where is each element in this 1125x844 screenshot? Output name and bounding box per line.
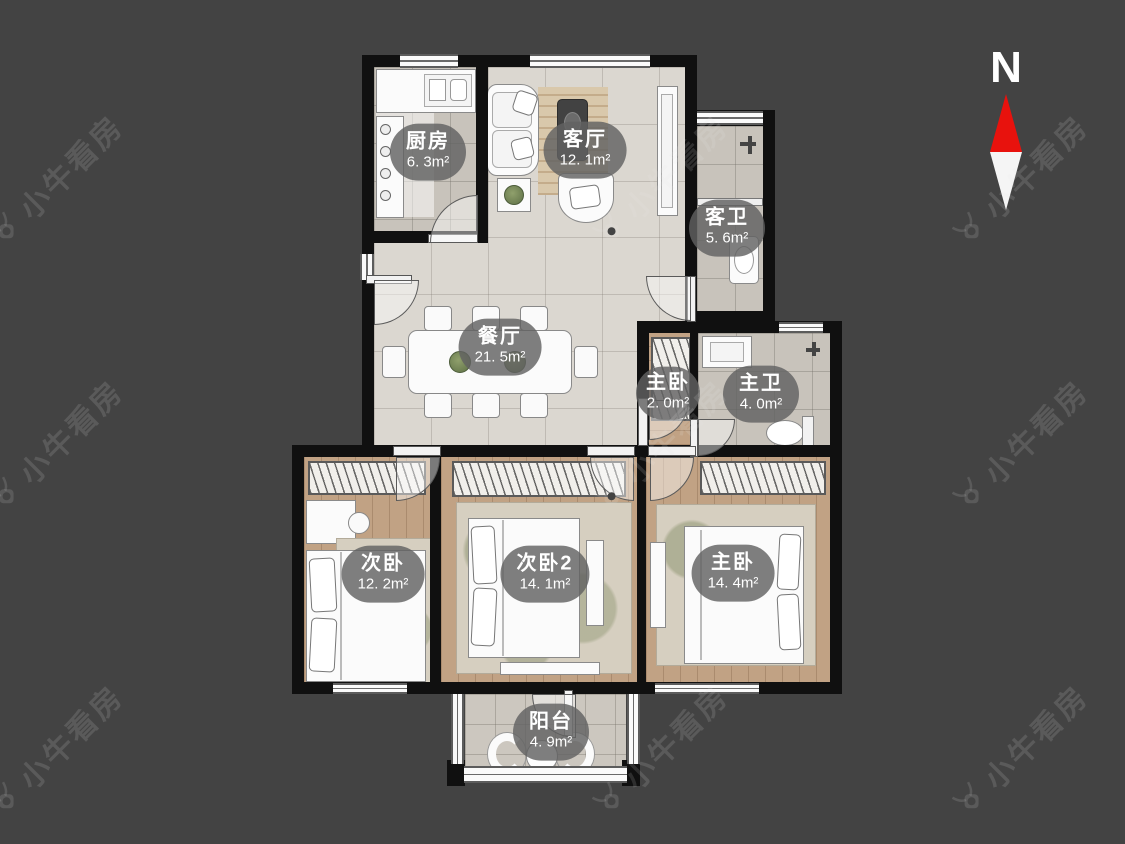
wall-bedrooms-top [292,445,842,457]
master-bath-basin [710,342,744,362]
wall-right-outer [830,321,842,694]
watermark-text: 小牛看房 [972,673,1096,797]
wall-guestbath-right [763,110,775,323]
window-masterbedroom-bottom [655,683,759,694]
dining-chair [472,393,500,418]
watermark: 小牛看房 [0,103,132,256]
bedroom2-door-leaf [393,446,441,456]
room-label-guest-bathroom: 客卫 5. 6m² [689,200,765,257]
bedroom2-chair [348,512,370,534]
bed-pillow [309,557,338,612]
watermark-text: 小牛看房 [7,103,131,227]
dining-chair [520,393,548,418]
room-area: 21. 5m² [475,349,526,368]
watermark: 小牛看房 [943,673,1096,826]
room-area: 4. 9m² [529,734,573,753]
wall-bedroom3-master-divider [637,457,646,694]
room-label-bedroom-3: 次卧2 14. 1m² [500,546,589,603]
room-label-dining-room: 餐厅 21. 5m² [459,319,542,376]
bed-pillow [470,587,497,646]
watermark-text: 小牛看房 [7,368,131,492]
room-name: 餐厅 [475,326,526,349]
room-label-living-room: 客厅 12. 1m² [544,122,627,179]
bed-pillow [309,617,338,672]
room-name: 厨房 [406,131,450,154]
shower-head-icon [740,142,756,146]
room-label-master-bathroom: 主卫 4. 0m² [723,366,799,423]
compass-south-needle [990,152,1022,210]
room-name: 客厅 [560,129,611,152]
compass-north-needle [990,94,1022,152]
kitchen-sink-bowl-right [450,79,467,101]
window-balcony-left [451,694,464,764]
window-masterbath-top [779,322,823,333]
watermark-text: 小牛看房 [972,368,1096,492]
room-area: 6. 3m² [406,154,450,173]
room-name: 主卫 [739,373,783,396]
window-living-top [530,54,650,68]
bedroom3-lowboard [500,662,600,675]
room-name: 阳台 [529,711,573,734]
window-balcony-bottom [464,766,627,783]
bed-pillow [470,525,497,584]
room-name: 次卧 [358,553,409,576]
window-balcony-right [627,694,640,764]
bedroom3-cabinet [586,540,604,626]
room-area: 14. 1m² [516,576,573,595]
master-bedroom-cabinet [650,542,666,628]
master-bath-toilet [766,420,804,446]
dining-chair [424,306,452,331]
room-area: 2. 0m² [646,395,690,414]
niu-logo-icon [0,777,28,822]
master-bath-toilet-tank [802,416,814,448]
wall-bedroom2-3-divider [430,457,441,694]
window-guestbath-top [697,111,763,125]
room-area: 5. 6m² [705,230,749,249]
room-name: 主卧 [646,372,690,395]
room-label-master-bedroom: 主卧 14. 4m² [692,545,775,602]
niu-logo-icon [948,472,993,517]
compass: N [976,46,1036,212]
faucet-icon [812,342,816,356]
compass-north-label: N [976,46,1036,90]
room-area: 12. 1m² [560,152,611,171]
room-area: 4. 0m² [739,396,783,415]
niu-logo-icon [948,777,993,822]
wall-bedroom2-left [292,457,304,694]
niu-logo-icon [948,207,993,252]
watermark: 小牛看房 [0,368,132,521]
dining-chair [574,346,598,378]
room-label-master-closet: 主卧 2. 0m² [636,367,700,420]
bed-pillow [777,593,802,650]
compass-needle-icon [988,94,1024,212]
room-label-balcony: 阳台 4. 9m² [513,704,589,761]
niu-logo-icon [0,207,28,252]
stove-burner [380,190,391,201]
plant [504,185,524,205]
room-area: 14. 4m² [708,575,759,594]
stove-burner [380,168,391,179]
niu-logo-icon [0,472,28,517]
armchair-pillow [569,184,602,210]
watermark: 小牛看房 [943,368,1096,521]
watermark: 小牛看房 [0,673,132,826]
window-bedroom2-bottom [333,683,407,694]
master-bedroom-wardrobe [700,461,826,495]
kitchen-sink-bowl-left [429,79,446,101]
room-name: 客卫 [705,207,749,230]
room-name: 主卧 [708,552,759,575]
masterbedroom-door-leaf [648,446,696,456]
floor-plan-canvas: 厨房 6. 3m² 客厅 12. 1m² 客卫 5. 6m² 餐厅 21. 5m… [0,0,1125,844]
stove-burner [380,124,391,135]
watermark-text: 小牛看房 [7,673,131,797]
tv-cabinet-shelf [661,94,673,208]
window-kitchen-top [400,54,458,68]
bed-pillow [777,533,802,590]
room-area: 12. 2m² [358,576,409,595]
room-name: 次卧2 [516,553,573,576]
room-label-kitchen: 厨房 6. 3m² [390,124,466,181]
bedroom3-door-leaf [587,446,635,456]
room-label-bedroom-2: 次卧 12. 2m² [342,546,425,603]
dining-chair [382,346,406,378]
dining-chair [424,393,452,418]
